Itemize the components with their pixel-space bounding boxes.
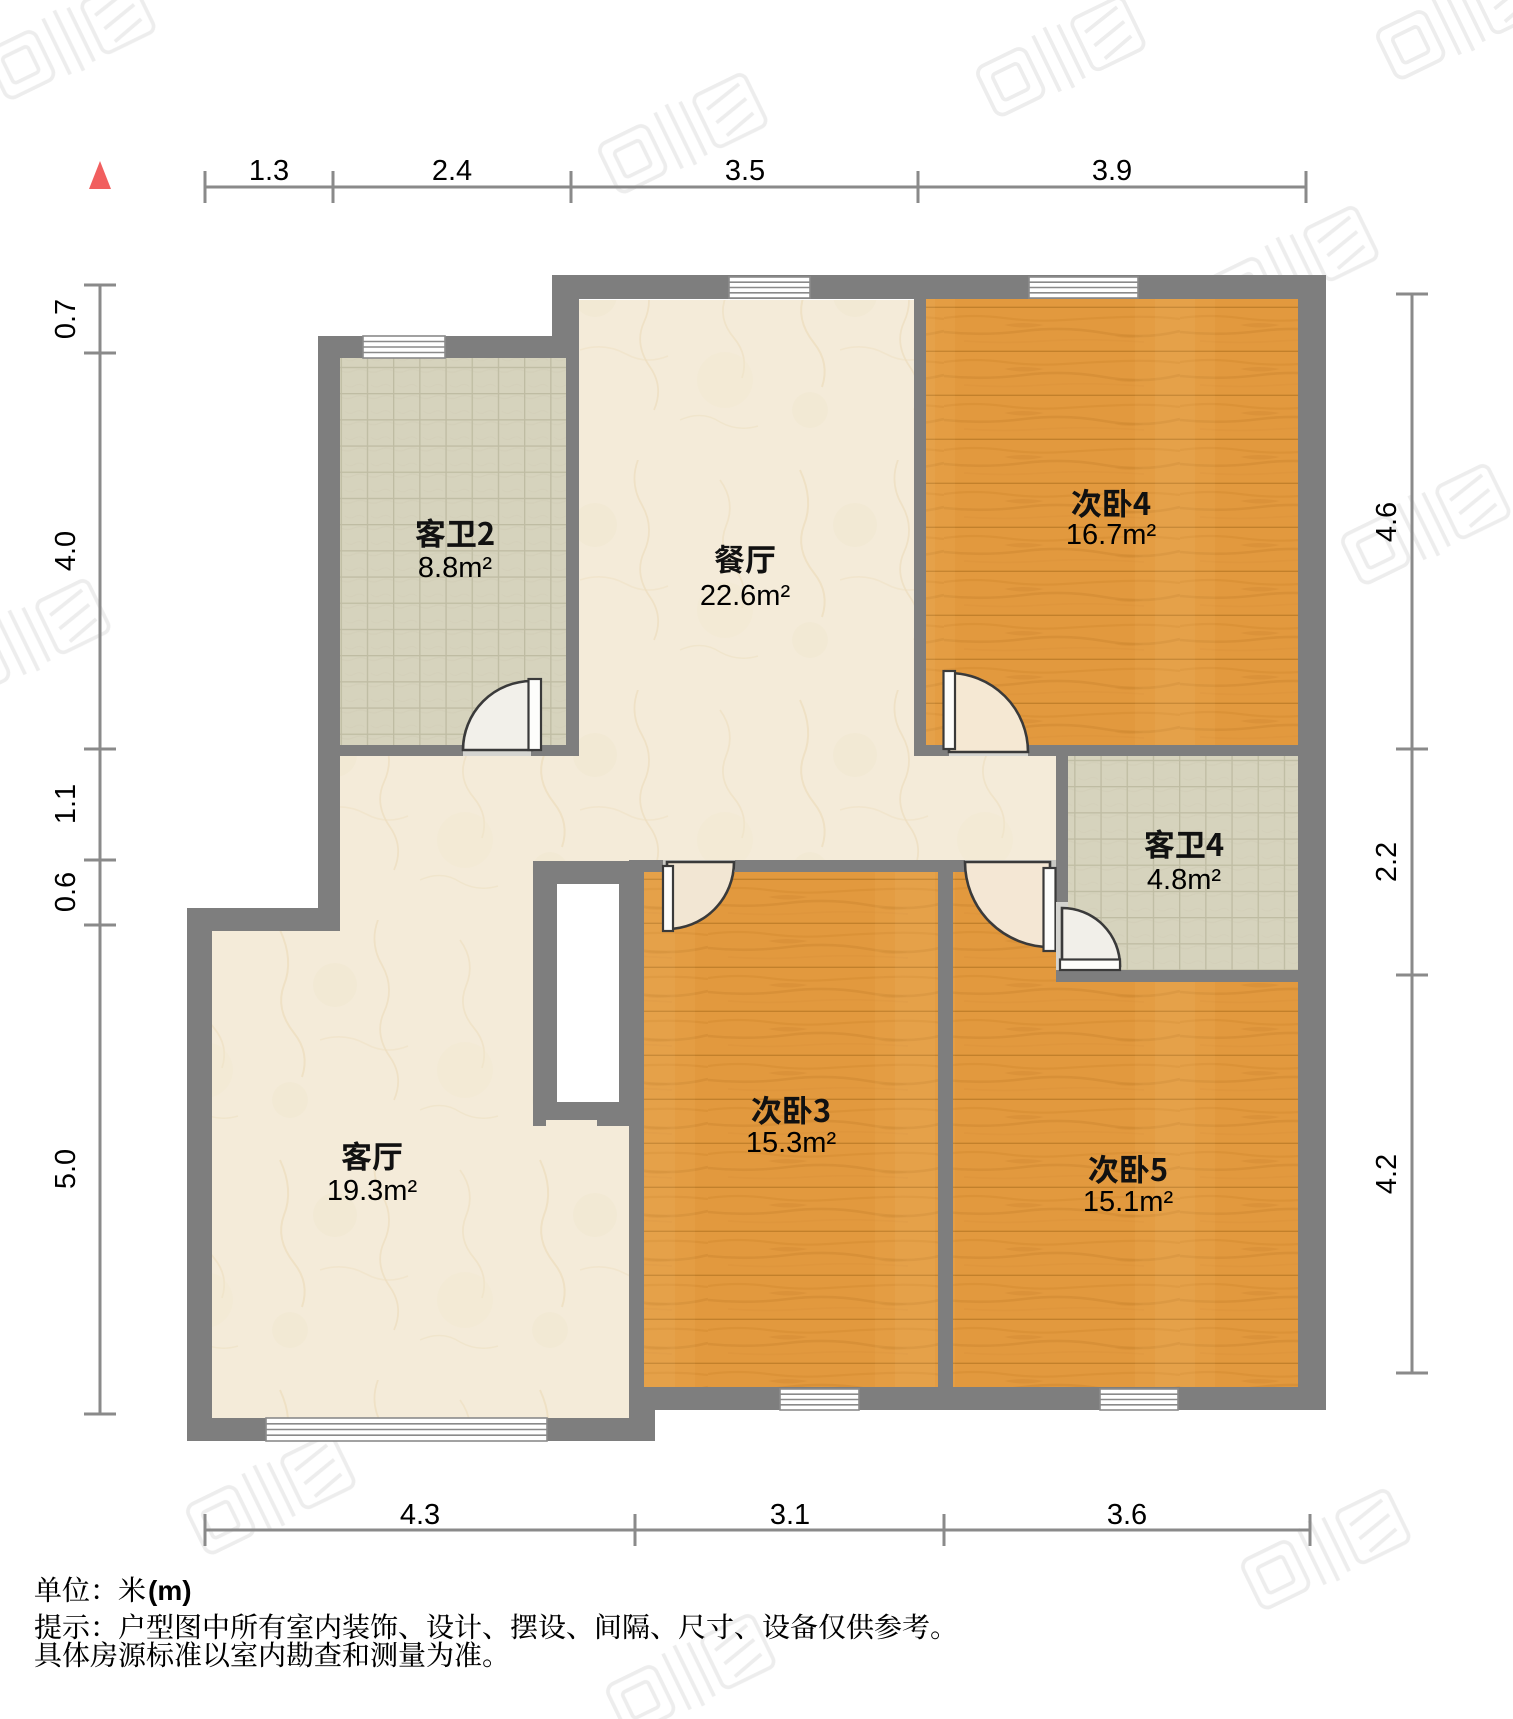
svg-text:16.7m²: 16.7m² (1066, 519, 1157, 551)
svg-text:5.0: 5.0 (50, 1149, 82, 1189)
svg-text:0.7: 0.7 (50, 299, 82, 339)
svg-text:4.8m²: 4.8m² (1147, 864, 1221, 896)
svg-text:3.6: 3.6 (1107, 1499, 1147, 1531)
svg-text:3.1: 3.1 (770, 1499, 810, 1531)
svg-text:2.2: 2.2 (1371, 842, 1403, 882)
svg-text:19.3m²: 19.3m² (327, 1175, 418, 1207)
svg-text:0.6: 0.6 (50, 872, 82, 912)
svg-text:1.3: 1.3 (249, 155, 289, 187)
svg-text:15.1m²: 15.1m² (1083, 1186, 1174, 1218)
svg-text:15.3m²: 15.3m² (746, 1127, 837, 1159)
svg-text:3.5: 3.5 (725, 155, 765, 187)
svg-text:1.1: 1.1 (50, 784, 82, 824)
svg-text:22.6m²: 22.6m² (700, 580, 791, 612)
svg-text:8.8m²: 8.8m² (418, 552, 492, 584)
svg-text:2.4: 2.4 (432, 155, 472, 187)
svg-text:4.2: 4.2 (1371, 1154, 1403, 1194)
svg-text:3.9: 3.9 (1092, 155, 1132, 187)
svg-text:4.3: 4.3 (400, 1499, 440, 1531)
svg-text:4.6: 4.6 (1371, 502, 1403, 542)
svg-text:(m): (m) (148, 1575, 192, 1606)
svg-text:4.0: 4.0 (50, 531, 82, 571)
